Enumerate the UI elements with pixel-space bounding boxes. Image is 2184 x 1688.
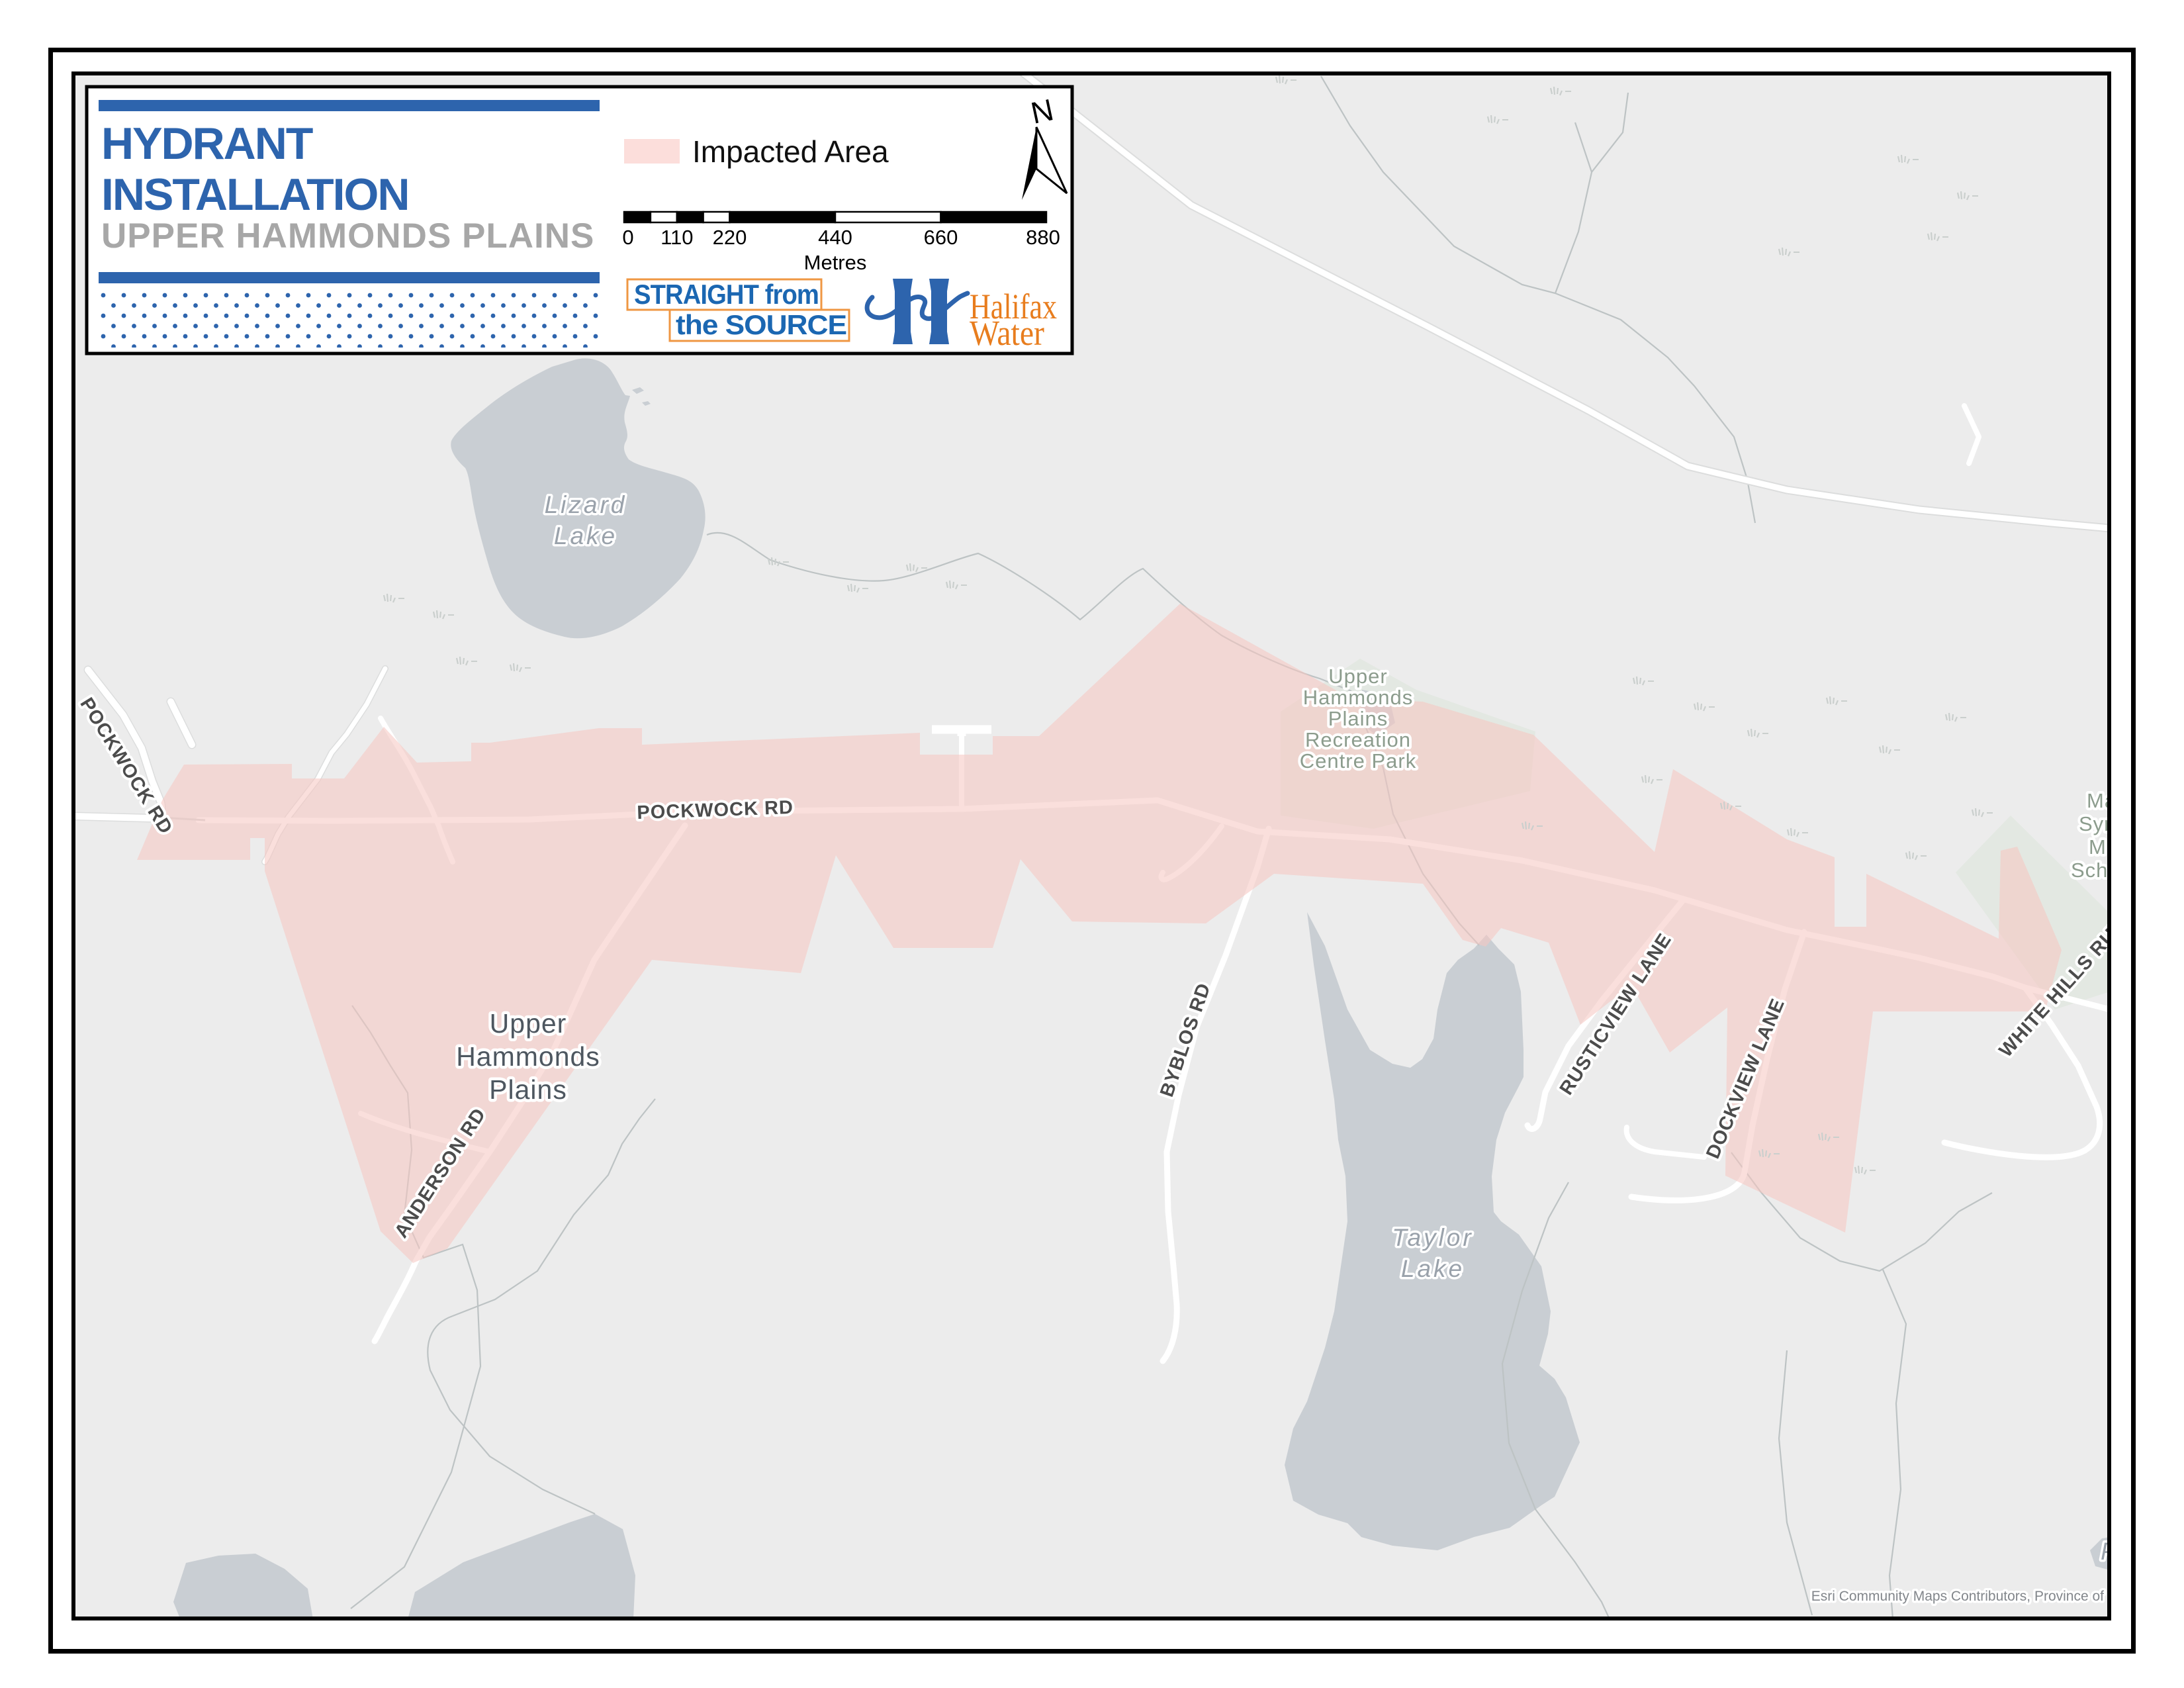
svg-text:Water: Water — [970, 313, 1044, 353]
svg-text:Metres: Metres — [804, 251, 867, 274]
svg-text:Hammonds: Hammonds — [456, 1041, 600, 1072]
svg-text:Plains: Plains — [489, 1074, 567, 1105]
svg-text:Taylor: Taylor — [1392, 1224, 1473, 1251]
svg-text:Recreation: Recreation — [1305, 728, 1411, 751]
svg-text:Lizard: Lizard — [545, 491, 627, 518]
svg-text:Hammonds: Hammonds — [1303, 686, 1414, 709]
svg-text:M: M — [2089, 835, 2107, 859]
svg-text:660: 660 — [924, 226, 958, 249]
svg-text:Impacted Area: Impacted Area — [692, 134, 889, 169]
svg-text:HYDRANT: HYDRANT — [101, 118, 313, 169]
svg-text:880: 880 — [1026, 226, 1060, 249]
svg-text:UPPER HAMMONDS PLAINS: UPPER HAMMONDS PLAINS — [101, 216, 594, 256]
svg-text:STRAIGHT from: STRAIGHT from — [634, 279, 819, 310]
svg-text:220: 220 — [713, 226, 747, 249]
svg-text:Plains: Plains — [1328, 707, 1388, 730]
svg-text:Esri Community Maps Contributo: Esri Community Maps Contributors, Provin… — [1811, 1589, 2104, 1604]
svg-text:Syr: Syr — [2079, 812, 2112, 835]
svg-text:the SOURCE: the SOURCE — [676, 309, 846, 340]
svg-text:440: 440 — [818, 226, 852, 249]
svg-text:Lake: Lake — [1401, 1255, 1465, 1282]
svg-text:Lake: Lake — [554, 522, 617, 549]
svg-text:0: 0 — [622, 226, 633, 249]
svg-text:110: 110 — [660, 226, 693, 249]
svg-text:Upper: Upper — [1328, 665, 1387, 688]
svg-text:Upper: Upper — [490, 1008, 567, 1039]
svg-text:Centre Park: Centre Park — [1300, 749, 1416, 773]
svg-text:INSTALLATION: INSTALLATION — [101, 169, 409, 220]
